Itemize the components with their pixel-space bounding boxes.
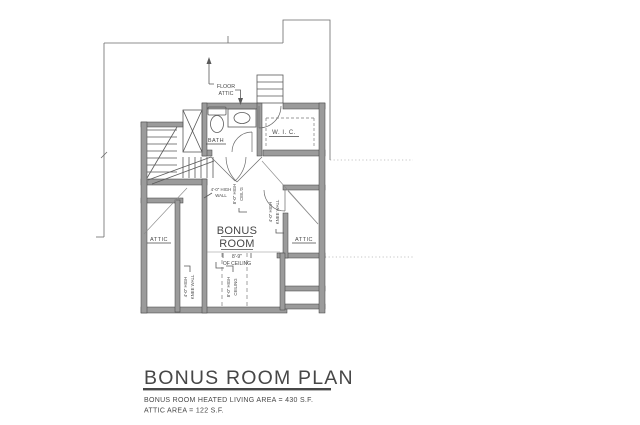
wic-label: W. I. C.	[272, 130, 296, 136]
floor-attic-note-line1: FLOOR	[217, 84, 235, 90]
attic-right-label: ATTIC	[295, 237, 313, 243]
toilet-bowl	[211, 116, 224, 133]
attic-left-label: ATTIC	[150, 237, 168, 243]
wall-note-line1: 4'-0" HIGH	[211, 187, 232, 192]
sink	[234, 113, 250, 124]
floor-attic-leaders	[207, 57, 244, 105]
knee-wall-bottom-note-line1: 4'-0" HIGH	[183, 277, 188, 298]
knee-wall-right-note-line1: 4'-0" HIGH	[268, 202, 273, 223]
bonus-room-label-line2: ROOM	[219, 238, 254, 250]
title-underline	[143, 388, 331, 390]
slope-lines	[144, 118, 318, 306]
flat-ceiling-dim-line1: 8'-9"	[232, 254, 242, 260]
ceiling-upper-note-line2: CEIL'G	[239, 186, 244, 200]
floor-plan-svg: BATH W. I. C. ATTIC ATTIC BONUS ROOM FLO…	[0, 0, 640, 425]
flat-ceiling-dim-line2: OF CEILING	[223, 261, 251, 267]
bonus-room-label-line1: BONUS	[217, 225, 258, 237]
drawing-sheet: BATH W. I. C. ATTIC ATTIC BONUS ROOM FLO…	[0, 0, 640, 425]
knee-wall-right-note-line2: KNEE WALL	[275, 199, 280, 224]
attic-chase	[257, 75, 283, 103]
floor-attic-note-line2: ATTIC	[219, 91, 234, 97]
ceiling-bottom-note-line1: 8'-0" HIGH	[226, 277, 231, 298]
open-to-below-box	[183, 110, 202, 152]
bath-label: BATH	[208, 138, 224, 144]
ceiling-bottom-note-line2: CEILING	[233, 278, 238, 296]
knee-wall-bottom-note-line2: KNEE WALL	[190, 274, 195, 299]
wall-note-line2: WALL	[215, 193, 227, 198]
plan-subtitle-line2: ATTIC AREA = 122 S.F.	[144, 408, 224, 415]
ceiling-upper-note-line1: 8'-0" HIGH	[232, 184, 237, 205]
bonus-door-right	[226, 157, 262, 182]
vanity-counter	[228, 109, 256, 127]
plan-title: BONUS ROOM PLAN	[144, 367, 354, 389]
bath-door	[232, 132, 252, 152]
wic-door	[259, 106, 281, 128]
bath-fixtures	[208, 107, 256, 133]
annotations: FLOOR ATTIC 4'-0" HIGH WALL 8'-0" HIGH C…	[183, 84, 280, 299]
title-block: BONUS ROOM PLAN BONUS ROOM HEATED LIVING…	[143, 367, 354, 415]
plan-subtitle-line1: BONUS ROOM HEATED LIVING AREA = 430 S.F.	[144, 397, 313, 404]
